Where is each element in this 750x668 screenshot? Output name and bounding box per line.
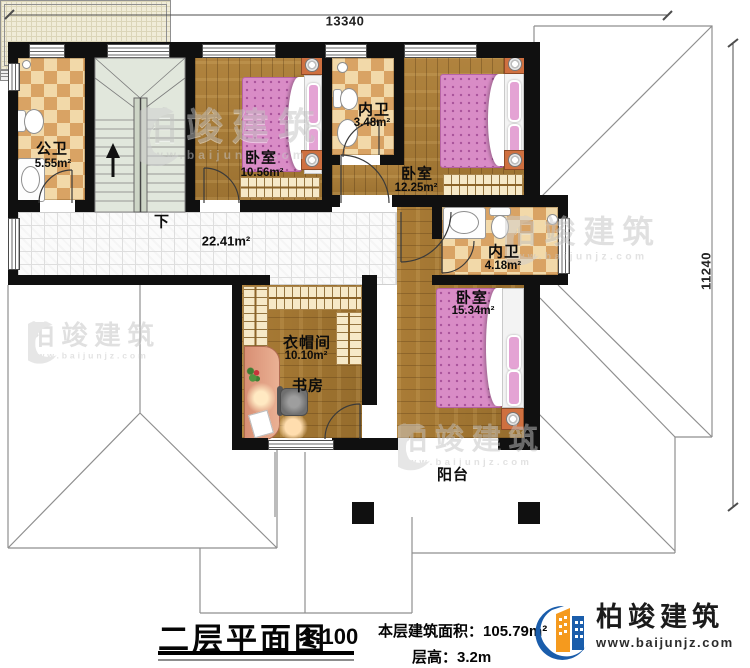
- room-area-inner-bath-mid: 4.18m²: [485, 260, 521, 272]
- brand-logo-icon: [534, 600, 592, 664]
- brand-name: 柏竣建筑: [596, 604, 734, 631]
- floor-area-label: 本层建筑面积：: [378, 623, 483, 640]
- room-label-study: 书房: [292, 375, 324, 396]
- title-underline: [158, 651, 354, 655]
- room-area-cloakroom: 10.10m²: [285, 350, 328, 362]
- brand-website: www.baijunjz.com: [596, 635, 734, 650]
- floor-plan-canvas: 柏竣建筑 www.baijunjz.com 柏竣建筑 www.baijunjz.…: [0, 0, 750, 668]
- room-label-inner-bath-mid: 内卫: [488, 241, 520, 262]
- floor-height-label: 层高：: [412, 649, 457, 666]
- dimension-width: 13340: [326, 14, 365, 29]
- brand-block: 柏竣建筑 www.baijunjz.com: [596, 604, 734, 650]
- room-area-bedroom-s: 15.34m²: [452, 305, 495, 317]
- room-label-bedroom-ne: 卧室: [401, 163, 433, 184]
- room-area-bedroom-ne: 12.25m²: [395, 182, 438, 194]
- room-label-balcony: 阳台: [437, 464, 469, 485]
- title-underline-thin: [158, 659, 354, 661]
- plan-scale: 1:100: [302, 624, 358, 650]
- room-label-public-bath: 公卫: [36, 138, 68, 159]
- staircase: [95, 58, 185, 212]
- floor-area-stat: 本层建筑面积：105.79m²: [378, 620, 547, 641]
- room-area-bedroom-nw: 10.56m²: [241, 167, 284, 179]
- room-label-bedroom-nw: 卧室: [245, 147, 277, 168]
- floor-height-value: 3.2m: [457, 649, 491, 666]
- room-area-public-bath: 5.55m²: [35, 158, 71, 170]
- room-area-hallway: 22.41m²: [202, 234, 250, 249]
- dimension-height: 11240: [699, 252, 714, 290]
- floor-height-stat: 层高：3.2m: [412, 646, 491, 667]
- stairs-down-label: 下: [154, 211, 170, 232]
- room-area-inner-bath-top: 3.48m²: [354, 117, 390, 129]
